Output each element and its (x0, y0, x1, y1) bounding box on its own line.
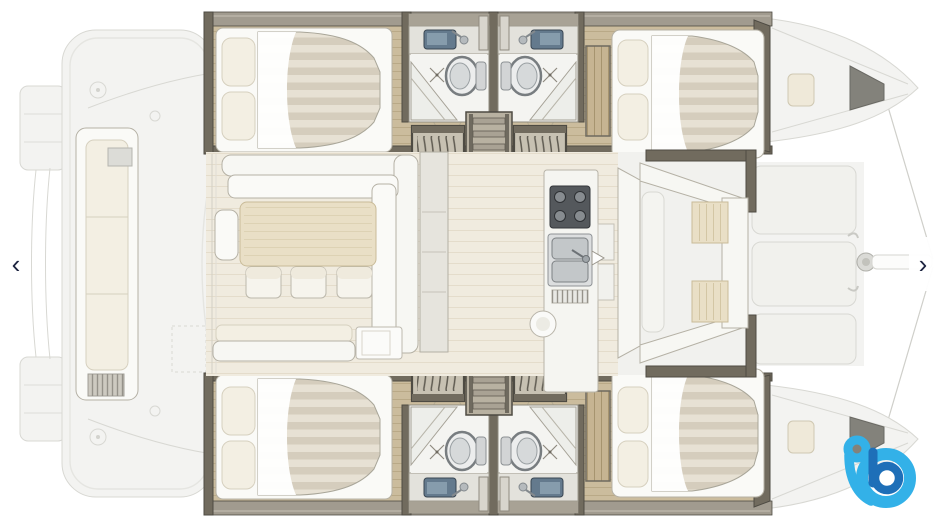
chevron-left-icon: ‹ (12, 251, 21, 277)
carousel-prev-button[interactable]: ‹ (0, 237, 30, 291)
cockpit-table (692, 202, 728, 243)
foredeck-panel (752, 242, 856, 306)
bathroom (498, 14, 578, 122)
swim-platform-top (20, 86, 66, 170)
forestay-top (886, 100, 933, 259)
transom-curve (32, 170, 37, 357)
carousel-next-button[interactable]: › (909, 237, 939, 291)
wardrobe (586, 46, 610, 136)
chart-cabinet (356, 327, 402, 359)
cabin-aft-bed (216, 28, 392, 152)
catamaran-floorplan-image (0, 0, 939, 527)
bench-sofa (213, 325, 355, 361)
hull-bow (764, 18, 918, 142)
faucet (460, 36, 468, 44)
carousel-image-viewer: ‹ › (0, 0, 939, 527)
pillow (222, 38, 255, 86)
foredeck-panel (752, 166, 856, 234)
pillow (222, 92, 255, 140)
saloon (206, 152, 618, 392)
dining-chair (291, 267, 326, 298)
forestay-bottom (886, 267, 933, 427)
foredeck (746, 100, 933, 427)
pillow (618, 94, 648, 140)
dining-chair (246, 267, 281, 298)
forward-cockpit (618, 150, 756, 377)
foredeck-panel (752, 314, 856, 364)
logo-b-icon (848, 440, 910, 502)
boataround-logo (837, 422, 929, 514)
pillow (618, 40, 648, 86)
dining-chair (337, 267, 372, 298)
bathroom (409, 14, 489, 122)
chevron-right-icon: › (919, 251, 928, 277)
cabin-forward-bed (612, 30, 764, 158)
stove (550, 186, 590, 228)
galley-sink (548, 234, 592, 286)
cockpit-table (692, 281, 728, 322)
cabinet (420, 152, 448, 352)
swim-platform-bottom (20, 357, 66, 441)
side-seat (215, 210, 238, 260)
dining-table (240, 202, 376, 266)
aft-cockpit-bench (76, 128, 138, 400)
